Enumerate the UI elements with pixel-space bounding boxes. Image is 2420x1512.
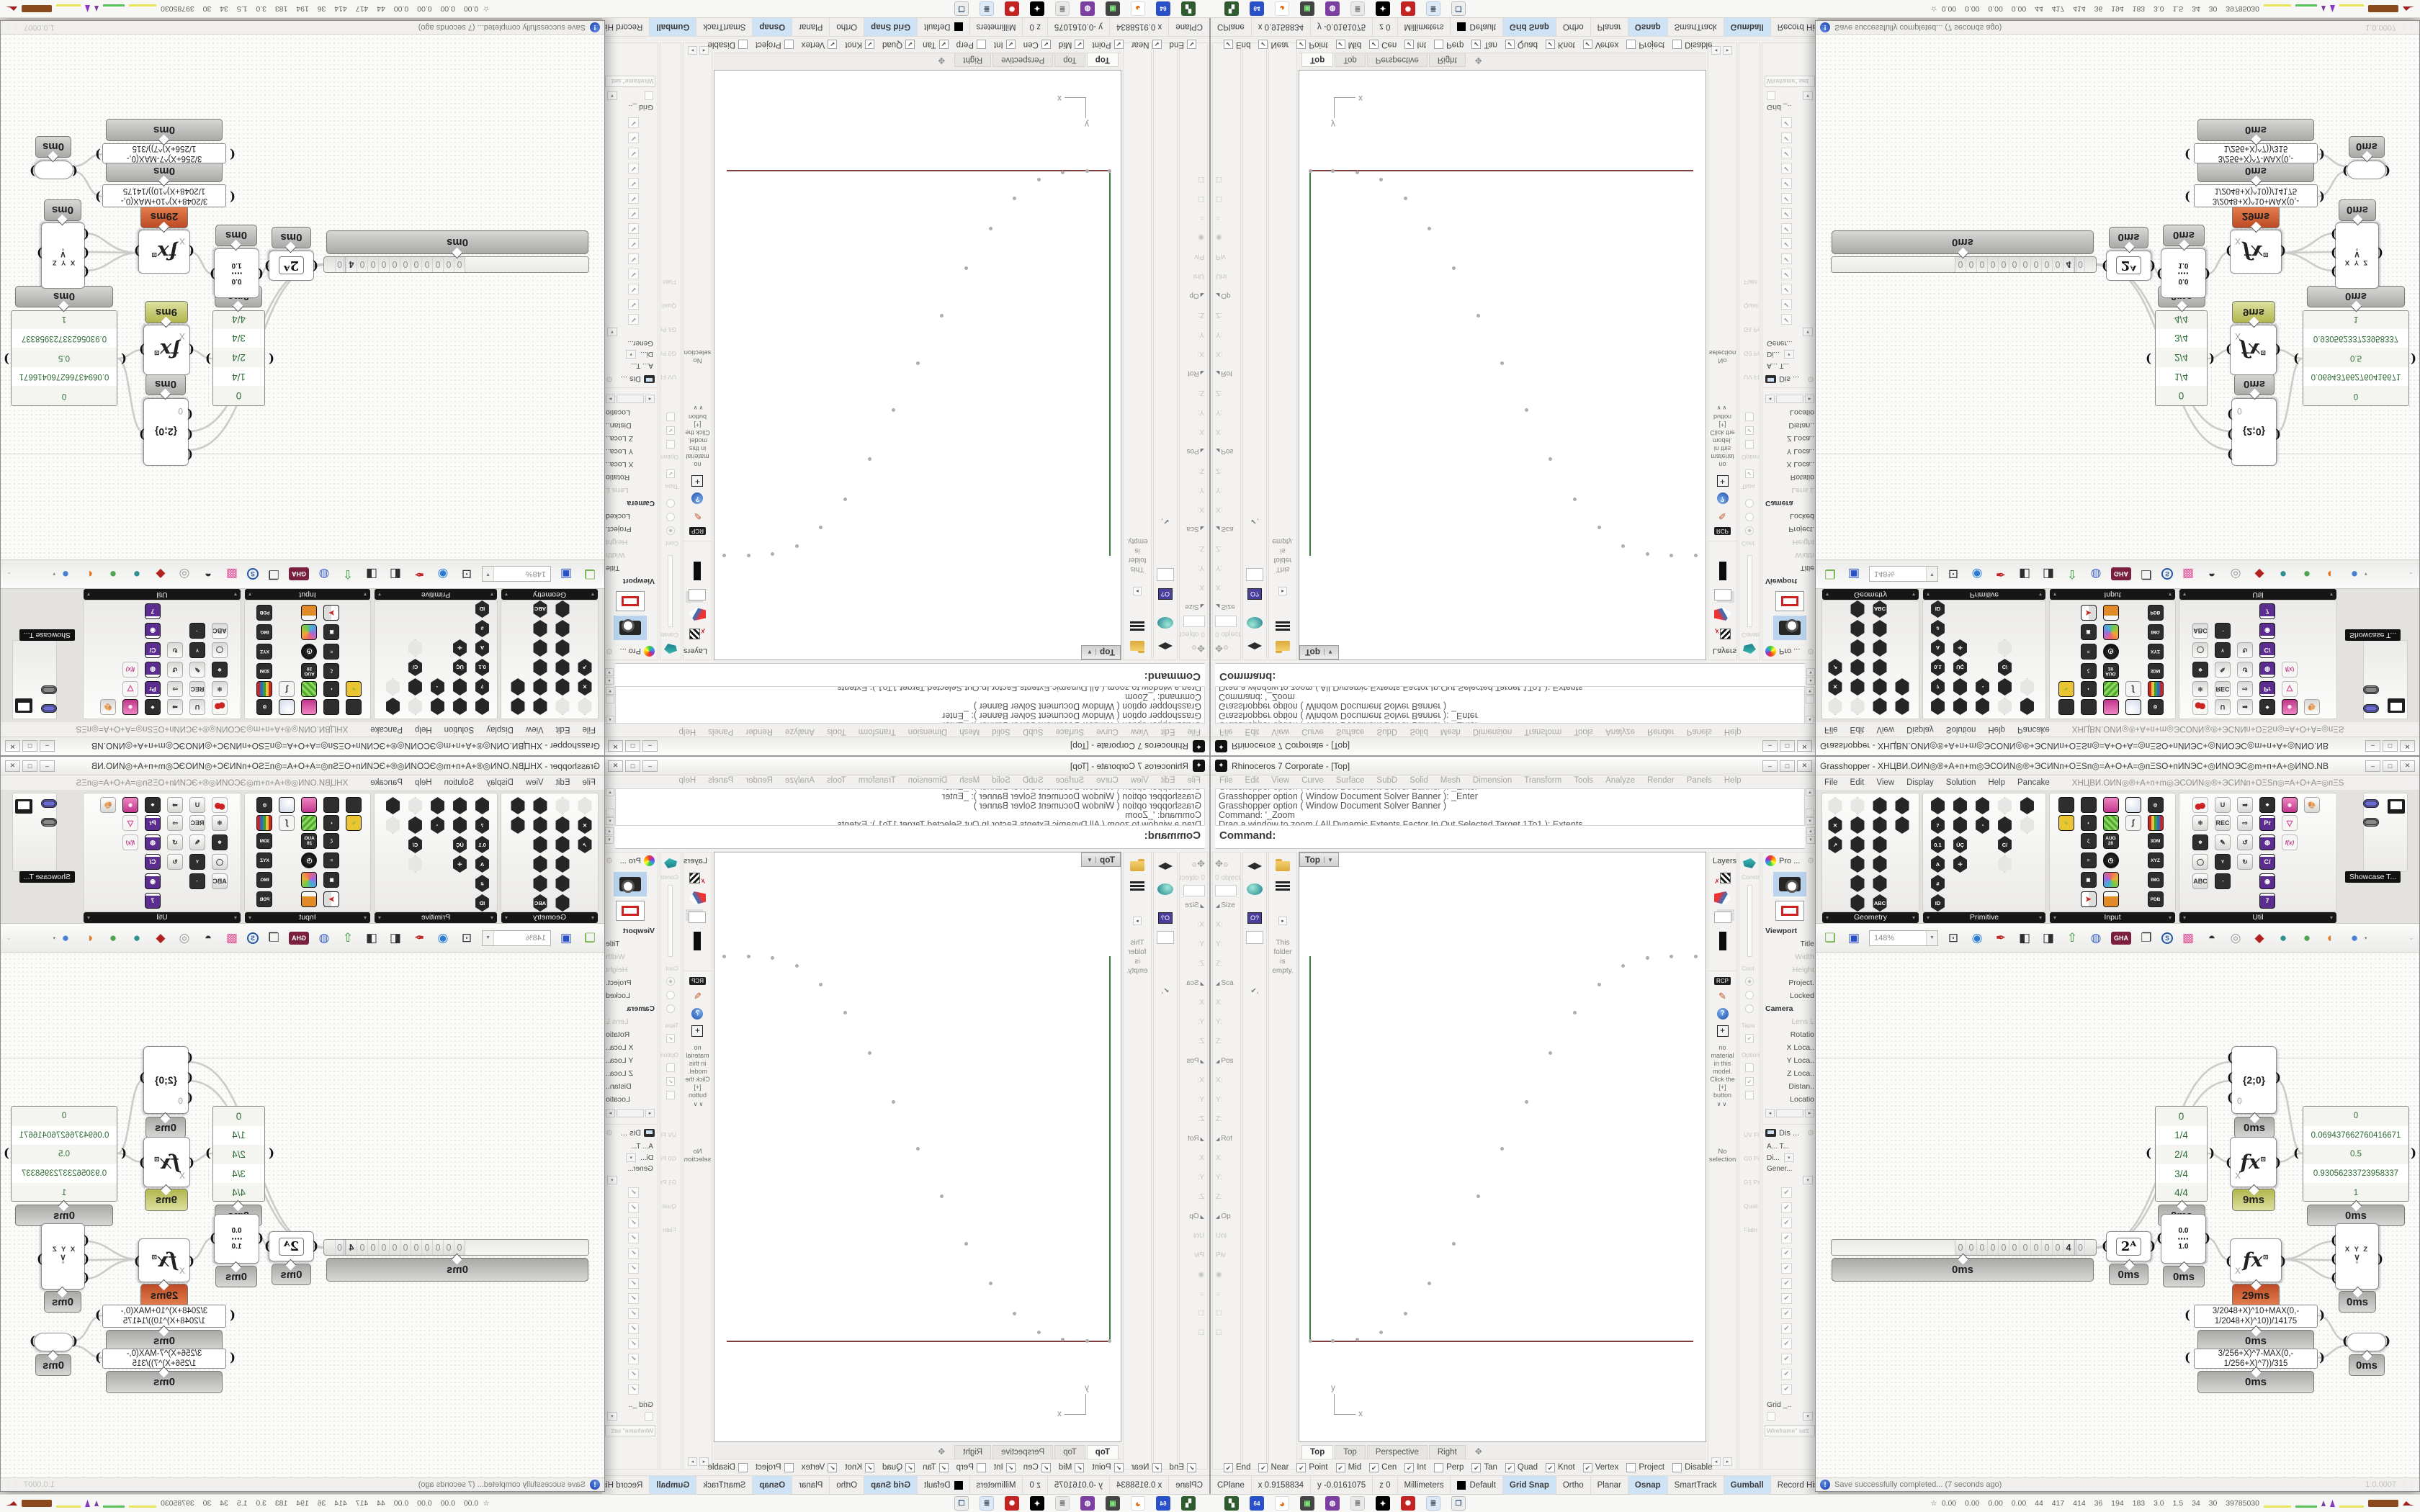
component-icon[interactable] [2192,797,2208,813]
property-row[interactable]: Lens L [1762,483,1817,496]
component-icon[interactable]: ✛ [1953,639,1968,657]
component-icon[interactable]: ↗ [1827,659,1843,676]
component-icon[interactable]: ❖ [2259,699,2275,715]
slider-digit[interactable]: 4 [346,1240,357,1255]
component-icon[interactable]: ➡ [167,699,183,715]
toolbar-icon[interactable]: ◆ [152,930,169,947]
property-row[interactable]: Project. [603,977,658,990]
component-icon[interactable]: f(x) [122,834,138,850]
component-icon[interactable] [532,620,548,637]
component-icon[interactable]: ⚛ [212,681,228,697]
taskbar-app-icon[interactable]: ≣ [1426,1,1440,16]
statusbar-cell[interactable]: z 0 [1373,1476,1397,1494]
property-row[interactable]: Viewport [603,925,658,938]
property-row[interactable]: Distan.. [603,418,658,431]
toolbar-icon[interactable]: ◧ [2016,566,2033,583]
component-icon[interactable]: f(x) [2282,834,2298,850]
layer-state-icon[interactable]: ✗ [689,626,707,639]
close-button[interactable]: ✕ [2400,760,2415,772]
expand-icon[interactable]: ▸ [1133,587,1142,595]
component-icon[interactable] [2020,816,2035,834]
property-row[interactable]: Title [1762,561,1817,574]
layers-materials-column[interactable]: Layers ✗ RCP ✎ ? + no material in this m… [683,852,712,1470]
toolbar-overflow-icon[interactable]: ⌄ [6,571,12,577]
display-checkbox[interactable]: ✔ [1781,1233,1792,1243]
component-icon[interactable] [1827,797,1843,814]
osnap-toggle[interactable]: ✔ Mid [1059,40,1085,50]
display-checkbox[interactable]: ✔ [628,1323,639,1334]
component-icon[interactable] [2058,872,2074,889]
rhino-menu-item[interactable]: SubD [1376,724,1397,736]
property-row[interactable]: X Loca.. [1762,457,1817,470]
component-icon[interactable]: Pr [2259,815,2275,831]
gh-menu-item[interactable]: Help [1988,725,2005,734]
statusbar-cell[interactable]: x 0.9158834 [1109,18,1168,36]
component-icon[interactable] [2020,836,2035,853]
display-header[interactable]: Dis ... ⚙ [1762,1124,1817,1141]
taskbar-app-icon[interactable]: ◕ [1275,1496,1289,1511]
component-icon[interactable] [385,600,401,618]
component-icon[interactable] [430,855,446,873]
component-icon[interactable] [385,698,401,715]
slider-digit[interactable]: 0 [2074,257,2085,272]
vertical-slider[interactable] [1747,885,1752,957]
component-icon[interactable] [2282,873,2298,891]
vertical-slider[interactable] [668,885,673,957]
component-icon[interactable]: ❄ [2192,834,2208,850]
display-checkbox[interactable]: ✔ [628,208,639,219]
close-button[interactable]: ✕ [608,741,623,752]
toolbar-icon[interactable]: ✒ [1992,930,2009,947]
slider-digit[interactable]: 0 [335,1240,346,1255]
property-row[interactable]: Camera [603,1003,658,1016]
slider-digit[interactable]: 0 [357,1240,367,1255]
gh-menu-item[interactable]: Display [1906,725,1934,734]
toolbar-icon[interactable]: ◨ [363,930,380,947]
property-row[interactable]: Camera [603,496,658,509]
component-icon[interactable] [167,621,183,639]
gh-node-construct-point[interactable]: ((( ) X Y Z ∨ ° [2335,222,2379,289]
viewport-tab[interactable]: Top [1087,53,1119,67]
camera-button[interactable] [1773,616,1806,640]
properties-scrollbar[interactable]: ◂▸ [1762,392,1817,405]
help-icon[interactable]: ? [692,492,704,504]
slider-digit[interactable]: 0 [411,257,421,272]
minimize-button[interactable]: – [40,741,55,752]
osnap-checkbox[interactable]: ✔ [1471,40,1481,50]
osnap-checkbox[interactable]: ✔ [1471,1463,1481,1472]
component-icon[interactable]: 0.1 [1930,659,1946,676]
slider-digit[interactable]: 0 [1966,1240,1977,1255]
swatch-box[interactable] [1157,931,1174,944]
component-icon[interactable] [555,678,570,696]
component-icon[interactable]: 7 [475,678,490,696]
component-icon[interactable] [510,894,526,912]
add-material-button[interactable]: + [1717,1025,1729,1037]
component-icon[interactable]: ABC [1872,894,1888,912]
radio-on[interactable]: ◉ [666,977,675,986]
taskbar-app-icon[interactable]: ▣ [1106,1496,1120,1511]
left-icon-strip[interactable]: O? ✔, [1153,852,1178,1470]
rhino-menu-item[interactable]: Analyze [1605,776,1635,788]
display-checkbox[interactable]: ✔ [628,1369,639,1380]
component-icon[interactable] [1827,855,1843,873]
palette-caption[interactable]: Primitive [1923,912,2045,923]
gh-menu-item[interactable]: Display [486,725,514,734]
osnap-toggle[interactable]: ✔ Point [1296,40,1327,50]
component-icon[interactable] [100,680,116,697]
gh-menu-item[interactable]: Pancake [370,778,403,787]
osnap-toggle[interactable]: ✔ Mid [1059,1463,1085,1472]
display-checkbox[interactable]: ✔ [1781,1369,1792,1380]
rhino-menu-item[interactable]: Surface [1056,724,1085,736]
component-icon[interactable] [346,872,362,889]
component-icon[interactable] [385,894,401,912]
component-icon[interactable] [1975,875,1991,892]
rhino-menu-item[interactable]: Curve [1301,724,1324,736]
property-row[interactable]: Z Loca.. [603,1068,658,1081]
component-icon[interactable]: A [475,639,490,657]
component-icon[interactable]: ◉ [2282,699,2298,715]
palette-caption[interactable]: Input [2050,912,2175,923]
component-icon[interactable]: ≡ [2081,644,2097,660]
component-icon[interactable] [510,698,526,715]
statusbar-cell[interactable]: Osnap [1628,1476,1668,1494]
toolbar-icon[interactable]: GHA [2111,932,2131,945]
toolbar-icon[interactable]: ❏ [581,930,599,947]
checkbox-checked[interactable]: ✔ [1745,469,1754,478]
component-icon[interactable]: C/ [408,836,423,853]
properties-header[interactable]: Pro ... ⚙ [603,643,658,660]
component-icon[interactable]: ◍ [145,662,161,678]
toolbar-icon[interactable]: ❐ [265,930,282,947]
property-row[interactable]: Y Loca.. [1762,1055,1817,1068]
toolbar-icon[interactable]: ▩ [2179,930,2197,947]
taskbar-app-icon[interactable]: ▣ [1300,1,1314,16]
rhino-menu-item[interactable]: View [1131,776,1149,788]
component-icon[interactable]: ❄ [212,662,228,678]
component-icon[interactable] [2215,602,2231,619]
component-icon[interactable] [1997,639,2013,657]
component-icon[interactable] [1953,816,1968,834]
toolbar-icon[interactable]: ⊡ [458,930,475,947]
component-icon[interactable]: ◉ [145,623,161,639]
statusbar-cell[interactable]: Default [917,18,969,36]
slider-digit[interactable]: 0 [2031,257,2042,272]
toolbar-icon[interactable]: ◆ [2251,930,2268,947]
property-row[interactable]: Camera [1762,1003,1817,1016]
toolbar-icon[interactable]: ◐ [2322,566,2339,583]
osnap-toggle[interactable]: ✔ Int [1404,1463,1426,1472]
component-icon[interactable]: Y [189,854,205,870]
component-icon[interactable]: PDB [257,605,273,621]
statusbar-cell[interactable]: Planar [792,1476,829,1494]
add-material-button[interactable]: + [692,475,704,487]
palette-caption[interactable]: Primitive [375,589,497,600]
octane-icon[interactable]: O? [1158,912,1173,924]
component-icon[interactable] [1850,659,1865,676]
toolbar-icon[interactable]: ⊡ [1945,930,1962,947]
component-icon[interactable]: ◷ [2103,644,2119,660]
component-icon[interactable] [510,797,526,814]
component-icon[interactable] [2304,873,2320,891]
component-icon[interactable] [2058,662,2074,679]
component-icon[interactable]: XYZ [257,852,273,868]
display-checkbox[interactable]: ✔ [628,1384,639,1395]
gh-menu-item[interactable]: Pancake [370,725,403,734]
rhino-viewport[interactable]: Top ▼ y x [714,70,1121,660]
slider-digit[interactable]: 0 [335,257,346,272]
rhino-titlebar[interactable]: ✦ Rhinoceros 7 Corporate - [Top] – □ ✕ [1211,757,1816,775]
display-checkbox[interactable]: ✔ [628,148,639,158]
component-icon[interactable]: ID [475,600,490,618]
component-icon[interactable]: ∿ [346,681,362,697]
gh-canvas[interactable]: ((( 0 ) {2;0} 0ms 01/42/43/44/4 ( ) 0ms … [1,953,604,1477]
gh-node-expression[interactable]: () X fx⊡ [138,1238,190,1282]
toolbar-icon[interactable]: ● [104,566,122,583]
property-row[interactable]: Z Loca.. [1762,1068,1817,1081]
component-icon[interactable] [2125,833,2141,850]
component-icon[interactable]: ↗ [577,659,593,676]
gh-panel-expression[interactable]: 3/2048+X)^10+MAX(0,- 1/2048+X)^10))/1417… [102,184,226,207]
gh-titlebar[interactable]: Grasshopper - XHЦBИ.OИN◎®+A+п+m◎ЭCOИN◎®+… [1,737,604,755]
toolbar-icon[interactable]: ◧ [2016,930,2033,947]
osnap-checkbox[interactable]: ✔ [1258,40,1268,50]
osnap-checkbox[interactable] [1434,1463,1443,1472]
component-icon[interactable] [2125,797,2141,813]
gh-menu-item[interactable]: View [1876,778,1894,787]
display-checkbox[interactable]: ✔ [1781,178,1792,189]
minimize-button[interactable]: – [40,760,55,772]
component-icon[interactable] [2020,698,2035,715]
component-icon[interactable] [408,816,423,834]
layer-state-icon[interactable]: ✗ [689,873,707,886]
toolbar-icon[interactable]: ⊡ [458,566,475,583]
property-row[interactable]: Width [1762,951,1817,964]
camera-button[interactable] [614,616,647,640]
palette-caption[interactable]: Geometry [501,912,598,923]
component-icon[interactable] [1872,855,1888,873]
property-row[interactable]: Rotatio [603,1029,658,1042]
rhino-menu-item[interactable]: Mesh [959,724,980,736]
component-icon[interactable] [1850,875,1865,892]
taskbar-app-icon[interactable]: ≣ [1055,1496,1070,1511]
component-icon[interactable]: AUG 20 [302,663,318,679]
rhino-menu-item[interactable]: File [1187,724,1201,736]
slider-digit[interactable]: 0 [400,1240,411,1255]
palette-caption[interactable]: Input [245,589,370,600]
component-icon[interactable] [452,678,468,696]
toolbar-icon[interactable]: ◓ [200,566,217,583]
osnap-checkbox[interactable] [977,1463,986,1472]
statusbar-cell[interactable]: Grid Snap [864,1476,917,1494]
slider-digit[interactable]: 0 [1977,257,1988,272]
component-icon[interactable] [2304,834,2320,852]
osnap-checkbox[interactable]: ✔ [1505,40,1515,50]
close-button[interactable]: ✕ [1797,741,1812,752]
display-header[interactable]: Dis ... ⚙ [603,1124,658,1141]
osnap-toggle[interactable]: ✔ Tan [923,1463,949,1472]
property-row[interactable]: Y Loca.. [603,1055,658,1068]
component-icon[interactable] [346,699,362,715]
component-icon[interactable] [1997,797,2013,814]
component-icon[interactable]: C/ [2259,642,2275,658]
scroll-down-icon[interactable]: ▼ [606,817,614,825]
taskbar-app-icon[interactable]: 64 [1156,1,1170,16]
component-icon[interactable]: ∫ [279,815,295,831]
learn-icon[interactable] [1158,640,1173,649]
render-sphere-icon[interactable] [1247,883,1263,895]
slider-digit[interactable]: 0 [389,257,400,272]
goggles-icon[interactable] [2363,818,2379,827]
statusbar-cell[interactable]: Ortho [829,1476,864,1494]
component-icon[interactable]: ≡ [324,852,340,868]
toolbar-icon[interactable]: ◉ [434,930,452,947]
rhino-menu-item[interactable]: Panels [1687,776,1712,788]
toolbar-icon[interactable]: ● [128,566,145,583]
gh-digit-slider[interactable]: 000000000040 [323,256,589,273]
rhino-menu-item[interactable]: View [1131,724,1149,736]
layers-materials-column[interactable]: Layers ✗ RCP ✎ ? + no material in this m… [683,42,712,660]
osnap-checkbox[interactable]: ✔ [1114,1463,1124,1472]
component-icon[interactable] [2020,875,2035,892]
rhino-menu-item[interactable]: Curve [1096,724,1119,736]
toolbar-icon[interactable]: ◍ [2087,930,2105,947]
checkbox-checked[interactable]: ✔ [1745,426,1754,435]
statusbar-cell[interactable]: Millimeters [969,1476,1023,1494]
component-icon[interactable] [2058,603,2074,621]
component-icon[interactable] [385,620,401,637]
osnap-checkbox[interactable] [784,40,794,50]
osnap-checkbox[interactable]: ✔ [1258,1463,1268,1472]
toolbar-icon[interactable]: ✒ [1992,566,2009,583]
rhino-menu-item[interactable]: Help [1724,724,1742,736]
component-icon[interactable] [430,600,446,618]
component-icon[interactable] [1997,855,2013,873]
toolbar-icon[interactable]: ◓ [2203,930,2220,947]
display-checkbox[interactable]: ✔ [1781,208,1792,219]
property-row[interactable]: Project. [1762,522,1817,535]
component-icon[interactable]: ◷ [302,644,318,660]
toolbar-icon[interactable]: ● [57,930,74,947]
component-icon[interactable] [1997,698,2013,715]
radio-off[interactable] [1745,991,1754,999]
checkbox-checked[interactable]: ✔ [666,426,675,435]
statusbar-cell[interactable]: SmartTrack [1668,18,1724,36]
palette-caption[interactable]: Geometry [501,589,598,600]
component-icon[interactable] [302,681,318,697]
rhino-menu-item[interactable]: Mesh [959,776,980,788]
rcp-icon[interactable]: RCP [1714,977,1731,985]
gh-node-expression[interactable]: () X fx⊡ [143,325,190,375]
component-icon[interactable] [324,797,340,813]
osnap-toggle[interactable]: ✔ Near [1258,40,1289,50]
rhino-menu-item[interactable]: Help [678,724,696,736]
new-layer-icon[interactable] [689,589,707,600]
toolbar-icon[interactable]: ✒ [411,566,428,583]
component-icon[interactable] [346,891,362,909]
slider-digit[interactable]: 0 [367,1240,378,1255]
component-icon[interactable] [1894,797,1910,814]
toolbar-overflow-icon[interactable]: ⌄ [2408,571,2414,577]
viewport-frame-button[interactable] [1775,591,1804,611]
component-icon[interactable] [1850,698,1865,715]
component-icon[interactable] [510,875,526,892]
component-icon[interactable] [100,834,116,852]
viewport-tab[interactable]: Top [1335,53,1366,67]
gh-menu-item[interactable]: Pancake [2017,778,2050,787]
taskbar-app-icon[interactable]: ◍ [1080,1,1095,16]
component-icon[interactable] [1975,620,1991,637]
component-icon[interactable]: ζ [2081,833,2097,849]
component-icon[interactable]: AUG 20 [2103,833,2119,849]
statusbar-cell[interactable]: CPlane [1168,1476,1209,1494]
toolbar-icon[interactable]: ● [57,566,74,583]
viewport-tab[interactable]: Top [1301,1445,1333,1459]
toolbar-icon[interactable]: GHA [2111,568,2131,581]
component-icon[interactable] [510,836,526,853]
scroll-down-icon[interactable]: ▼ [1806,687,1814,695]
component-icon[interactable]: ⇨ [167,681,183,697]
component-icon[interactable]: 7 [2259,603,2275,619]
chevron-down-icon[interactable]: ▾ [2365,572,2367,577]
radio-off[interactable] [666,1004,675,1013]
toolbar-icon[interactable]: ◓ [200,930,217,947]
component-icon[interactable] [1975,600,1991,618]
taskbar-app-icon[interactable]: ✺ [1401,1,1415,16]
expand-icon[interactable]: ▸ [1133,917,1142,925]
viewport-frame-button[interactable] [1775,901,1804,921]
display-checkbox[interactable]: ✔ [1781,1187,1792,1198]
rhino-menu-item[interactable]: Transform [1524,724,1561,736]
display-checkbox[interactable]: ✔ [1781,1354,1792,1364]
gh-panel-expression[interactable]: 3/2048+X)^10+MAX(0,- 1/2048+X)^10))/1417… [2194,184,2318,207]
statusbar-cell[interactable]: y -0.0161075 [1047,18,1109,36]
component-icon[interactable]: 7 [1930,678,1946,696]
rhino-menu-item[interactable]: Solid [992,776,1010,788]
palette-caption[interactable]: Geometry [1822,589,1919,600]
component-icon[interactable] [2103,815,2119,831]
display-checkbox[interactable]: ✔ [1781,238,1792,249]
display-checkbox[interactable]: ✔ [628,284,639,294]
display-checkbox[interactable]: ✔ [628,117,639,128]
command-scrollbar[interactable]: ▲ ▼ [1806,788,1815,826]
component-icon[interactable] [555,855,570,873]
component-icon[interactable]: 🎨 [100,797,116,813]
display-subrow[interactable]: Di...▾ [603,1152,658,1164]
goggles-icon[interactable] [2363,799,2379,808]
statusbar-cell[interactable]: CPlane [1168,18,1209,36]
statusbar-cell[interactable]: Grid Snap [1503,1476,1556,1494]
component-icon[interactable] [1953,620,1968,637]
component-icon[interactable] [430,620,446,637]
component-icon[interactable] [2304,854,2320,871]
component-icon[interactable]: ◎ [257,797,273,813]
property-row[interactable]: Locked [603,509,658,522]
component-icon[interactable]: ➡ [2237,699,2253,715]
minimize-button[interactable]: – [1762,741,1778,752]
slider-digit[interactable]: 0 [2009,1240,2020,1255]
gh-canvas[interactable]: ((( 0 ) {2;0} 0ms 01/42/43/44/4 ( ) 0ms … [1816,35,2419,559]
gh-menu-item[interactable]: File [582,778,596,787]
component-icon[interactable]: ✕ [1827,678,1843,696]
gear-icon[interactable]: ⚙ [606,856,613,865]
osnap-checkbox[interactable] [784,1463,794,1472]
toolbar-icon[interactable]: S [247,932,259,944]
component-icon[interactable]: ✎ [189,662,205,678]
component-icon[interactable] [430,797,446,814]
gh-node-expression[interactable]: () X fx⊡ [138,230,190,274]
